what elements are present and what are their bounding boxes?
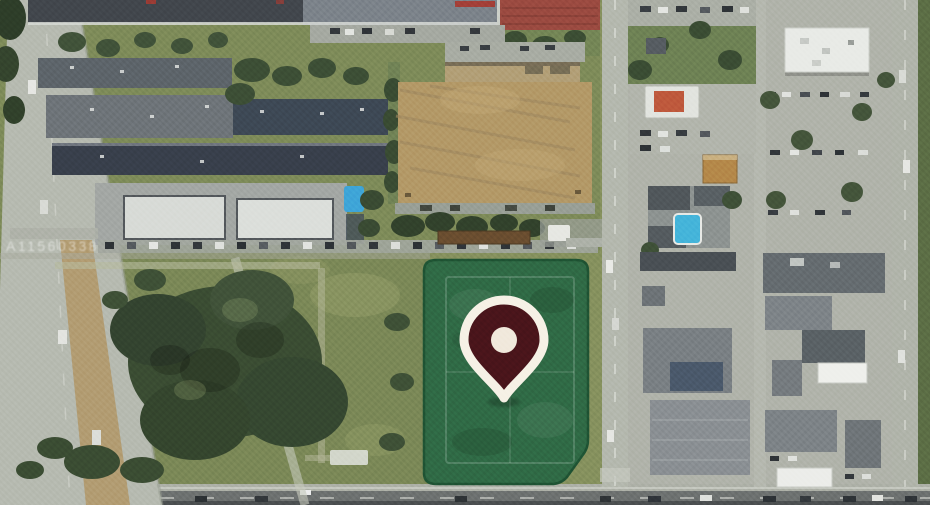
satellite-map-view[interactable]: A11560338 bbox=[0, 0, 930, 505]
pool bbox=[674, 214, 701, 244]
pin-center-dot bbox=[491, 327, 517, 353]
mls-watermark: A11560338 bbox=[6, 238, 99, 254]
middle-road bbox=[600, 0, 630, 487]
